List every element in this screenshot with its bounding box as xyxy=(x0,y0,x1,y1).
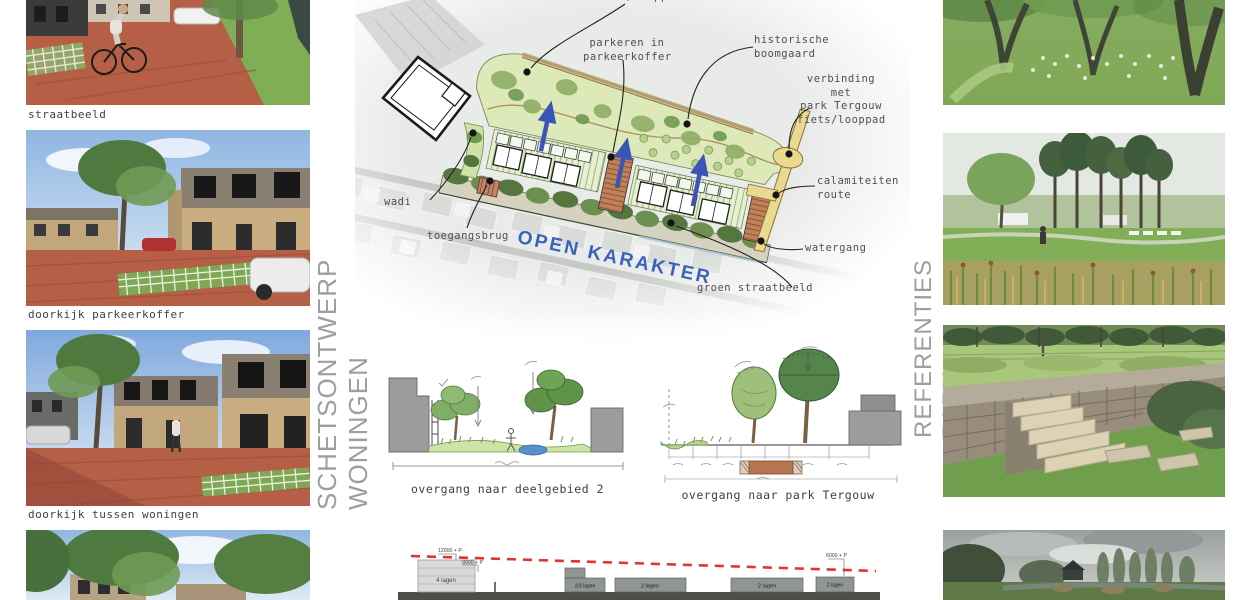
photo-left-bottom xyxy=(26,530,310,600)
cloudy-landscape-image xyxy=(943,530,1225,600)
caption-doorkijk-parkeerkoffer: doorkijk parkeerkoffer xyxy=(28,308,185,321)
street-houses-image xyxy=(26,130,310,306)
park-image xyxy=(943,133,1225,305)
caption-section-tergouw: overgang naar park Tergouw xyxy=(658,488,898,502)
label-parkeren-parkeerkoffer: parkeren in parkeerkoffer xyxy=(583,37,671,64)
elevation-diagram: 4 lagen 2/3 lagen 2 lagen 2 lagen 2 lage… xyxy=(398,540,882,600)
caption-doorkijk-tussen-woningen: doorkijk tussen woningen xyxy=(28,508,199,521)
photo-polder-reference xyxy=(943,530,1225,600)
label-groen-straatbeeld: groen straatbeeld xyxy=(697,282,813,296)
label-wadi: wadi xyxy=(384,196,411,210)
orchard-image xyxy=(943,0,1225,105)
elevation-building-3-label: 2 lagen xyxy=(641,584,659,590)
park-visitor-figure xyxy=(1040,226,1046,244)
label-calamiteiten-route: calamiteiten route xyxy=(817,175,899,202)
label-verbinding-park-tergouw: verbinding met park Tergouw fiets/looppa… xyxy=(797,73,885,128)
street-scene-image xyxy=(26,0,310,105)
photo-doorkijk-parkeerkoffer xyxy=(26,130,310,306)
elevation-building-1-label: 4 lagen xyxy=(436,578,456,584)
trees-houses-image xyxy=(26,530,310,600)
caption-section-deelgebied: overgang naar deelgebied 2 xyxy=(390,482,625,496)
elevation-height-9000: 9000 + P xyxy=(462,560,483,566)
photo-doorkijk-tussen-woningen xyxy=(26,330,310,506)
elevation-building-4-label: 2 lagen xyxy=(758,584,776,590)
label-fiets-looppad: fiets/looppad xyxy=(592,0,682,5)
street-houses-image-2 xyxy=(26,330,310,506)
label-watergang: watergang xyxy=(805,242,866,256)
photo-orchard-reference xyxy=(943,0,1225,105)
label-historische-boomgaard: historische boomgaard xyxy=(754,34,829,61)
section-sketch-tergouw xyxy=(653,345,908,487)
label-toegangsbrug: toegangsbrug xyxy=(427,230,509,244)
caption-straatbeeld: straatbeeld xyxy=(28,108,106,121)
stone-wall-image xyxy=(943,325,1225,497)
presentation-board: straatbeeld xyxy=(0,0,1252,600)
photo-wall-stairs-reference xyxy=(943,325,1225,497)
elevation-height-12000: 12000 + P xyxy=(438,548,462,554)
elevation-height-6000: 6000 + P xyxy=(826,553,847,559)
section-sketch-deelgebied xyxy=(383,352,635,480)
photo-straatbeeld xyxy=(26,0,310,105)
elevation-building-2-label: 2/3 lagen xyxy=(575,584,596,590)
photo-park-reference xyxy=(943,133,1225,305)
elevation-building-5-label: 2 lagen xyxy=(827,583,844,589)
